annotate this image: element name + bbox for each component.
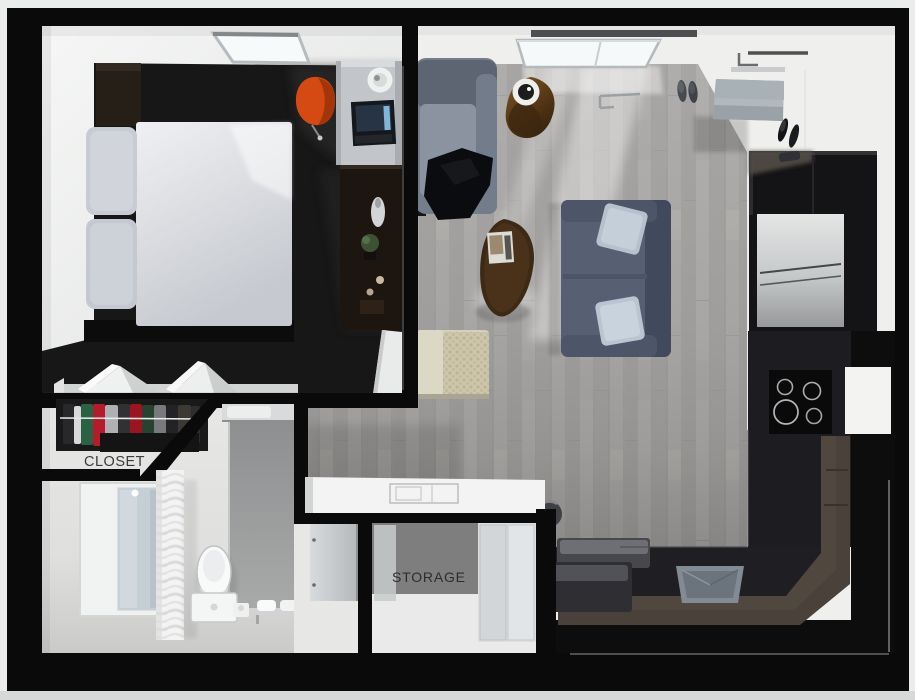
svg-text:STORAGE: STORAGE (392, 569, 466, 585)
svg-text:CLOSET: CLOSET (84, 454, 145, 470)
